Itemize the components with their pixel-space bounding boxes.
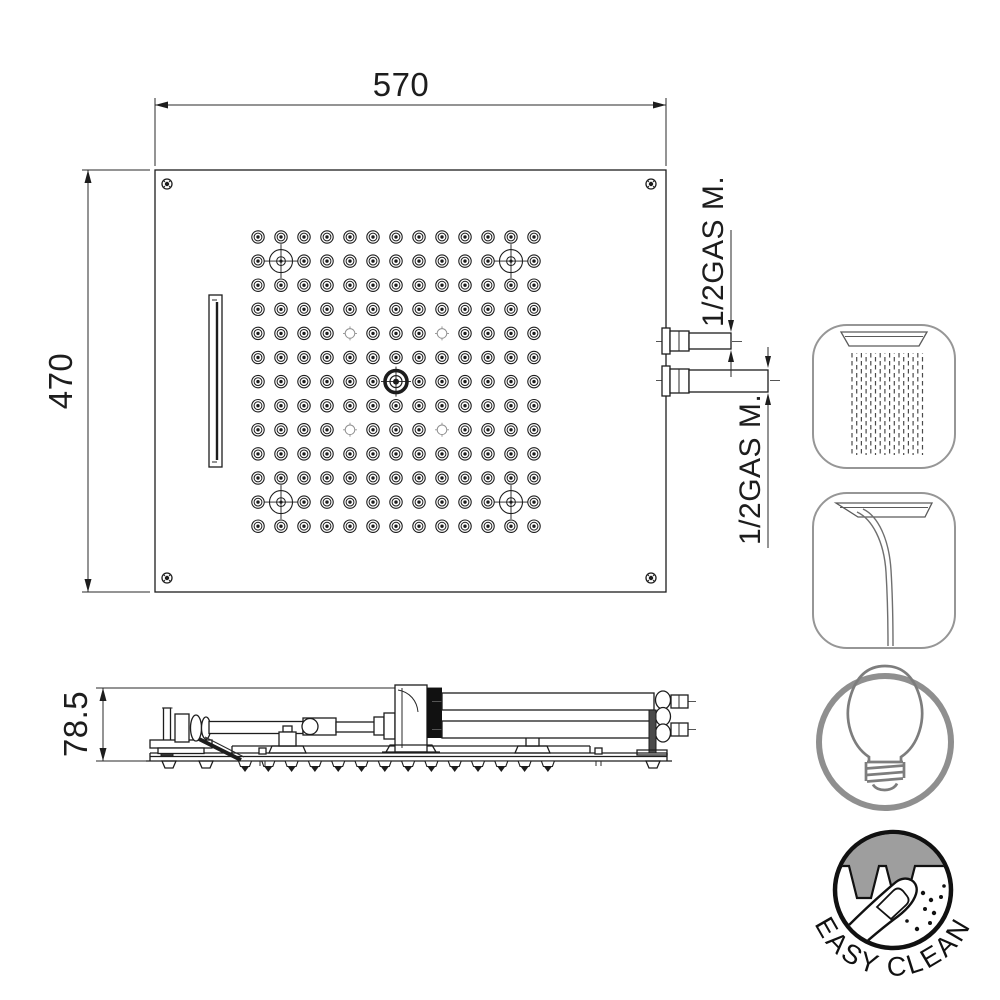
side-view: 78.5	[57, 685, 700, 772]
thread-label-bottom: 1/2GAS M.	[734, 394, 767, 545]
easy-clean-badge: EASY CLEAN	[809, 818, 977, 982]
feature-icons: EASY CLEAN	[809, 325, 977, 982]
pipe-coupler	[302, 713, 395, 739]
light-icon	[819, 666, 951, 808]
rain-flow-icon	[813, 325, 955, 468]
side-pipes	[432, 691, 700, 742]
drawing-canvas: 1/2GAS M. 1/2GAS M. 570 470 78.5	[0, 0, 1000, 1000]
thread-label-top: 1/2GAS M.	[697, 176, 730, 327]
technical-drawing-page: 1/2GAS M. 1/2GAS M. 570 470 78.5	[0, 0, 1000, 1000]
top-view: 1/2GAS M. 1/2GAS M.	[155, 170, 781, 592]
waterfall-flow-icon	[813, 493, 955, 648]
dim-width-label: 570	[373, 66, 430, 103]
dim-height-label: 78.5	[57, 691, 94, 757]
dim-depth-label: 470	[42, 353, 79, 410]
dimension-width: 570	[155, 66, 666, 166]
dimension-depth: 470	[42, 170, 150, 592]
side-nozzle-teeth	[239, 761, 555, 772]
showerhead-panel	[155, 170, 666, 592]
outlet-pipe-2	[656, 366, 781, 396]
outlet-pipe-1	[656, 328, 744, 354]
right-bracket	[595, 710, 667, 768]
